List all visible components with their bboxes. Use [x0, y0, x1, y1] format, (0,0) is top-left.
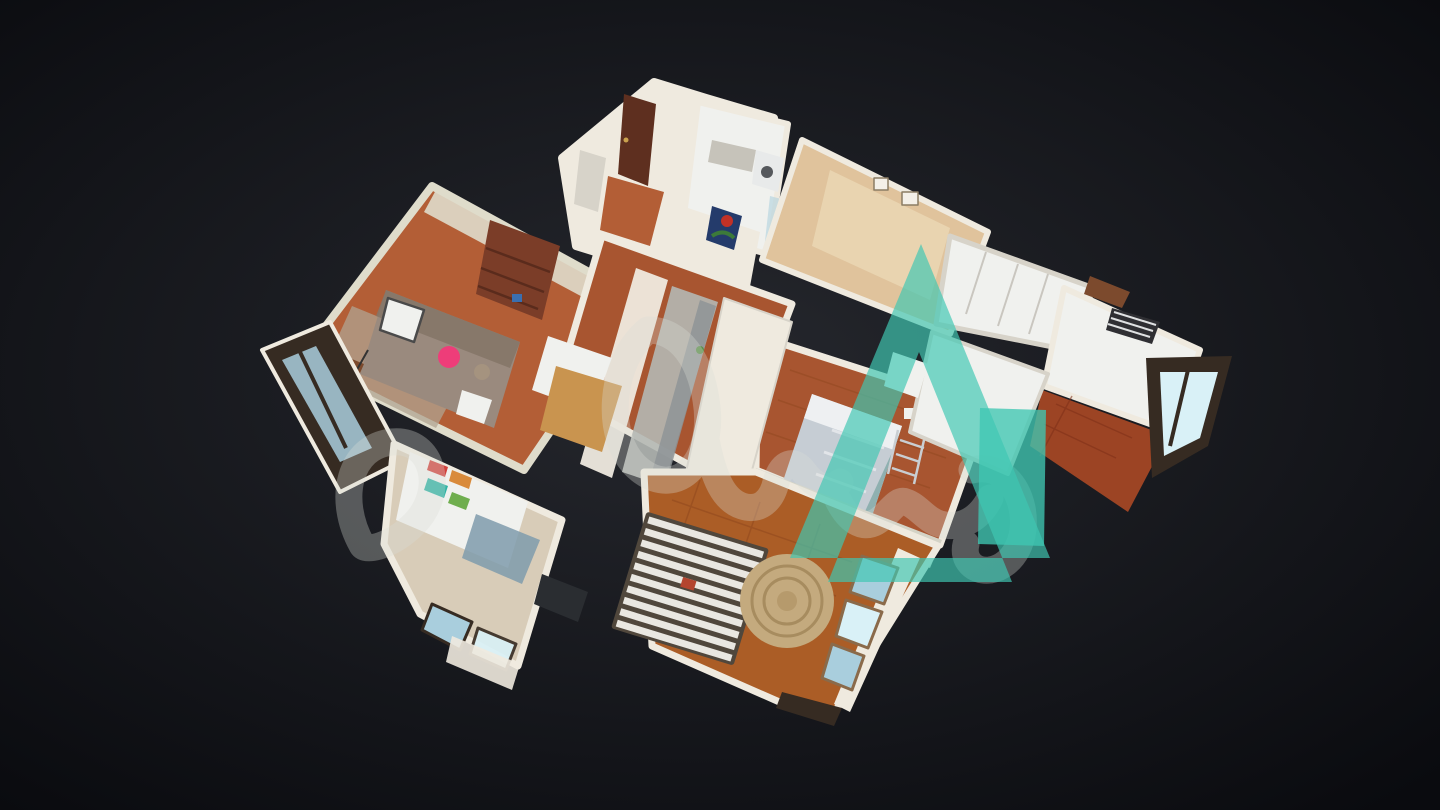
washing-machine-door — [761, 166, 773, 178]
rug-center — [777, 591, 797, 611]
wall-frame-small-2 — [902, 192, 918, 205]
sofa-pillow — [474, 364, 490, 380]
pink-throw — [438, 346, 460, 368]
wall-frame-small-1 — [874, 178, 888, 190]
door-handle — [624, 138, 629, 143]
shelf-blue-item — [512, 294, 522, 302]
dollhouse-scene — [0, 0, 1440, 810]
artwork-red-shape — [721, 215, 733, 227]
watermark-square — [978, 408, 1046, 546]
dollhouse-3d-canvas[interactable] — [0, 0, 1440, 810]
